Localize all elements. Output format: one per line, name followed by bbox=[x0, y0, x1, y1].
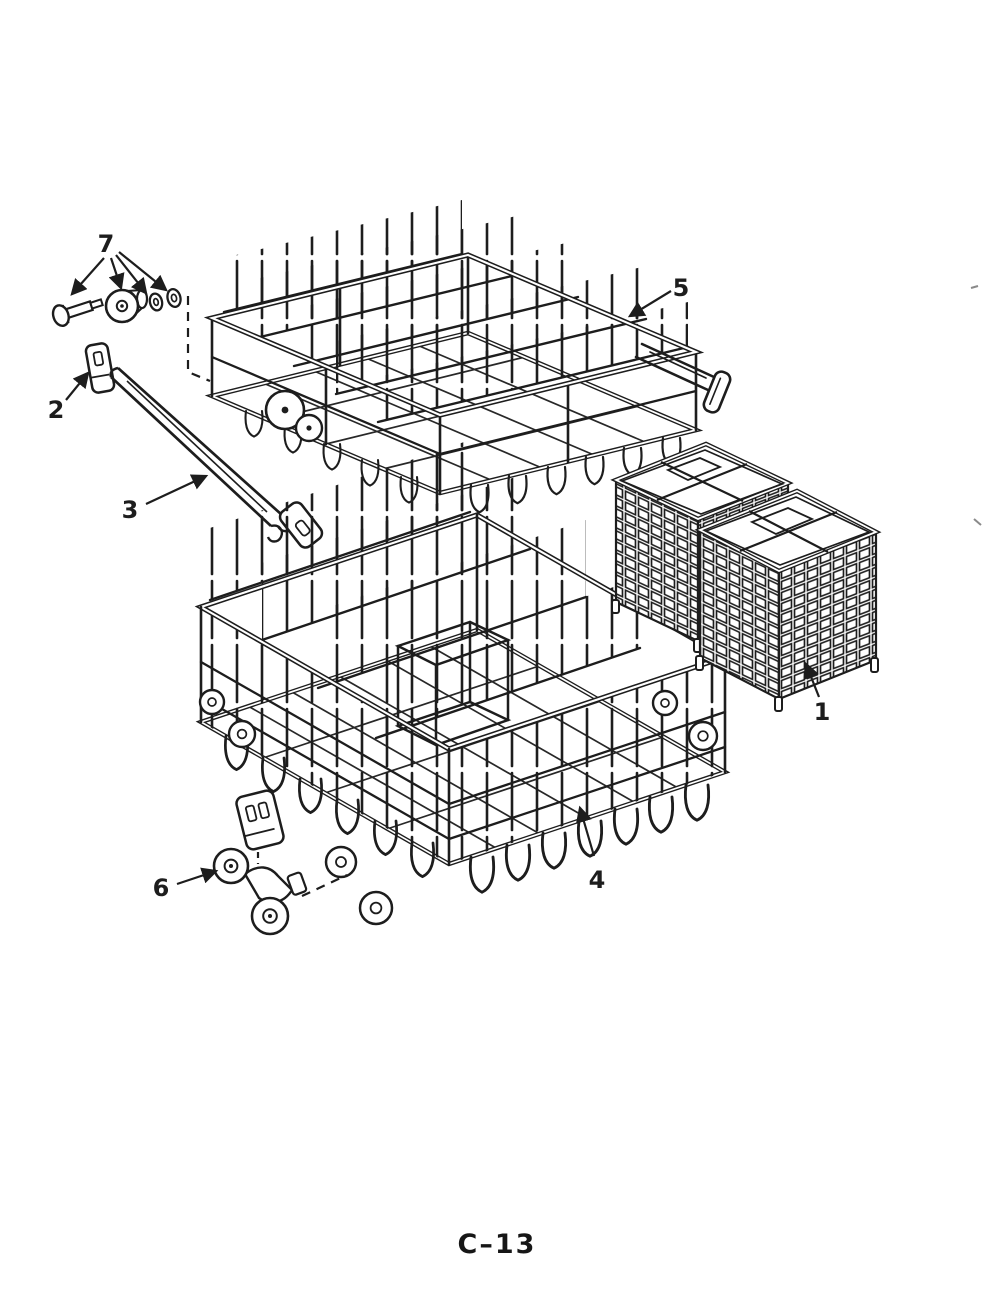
callout-6: 6 bbox=[153, 871, 216, 902]
page-label: C–13 bbox=[458, 1229, 537, 1260]
callout-3-label: 3 bbox=[122, 496, 139, 524]
print-specks bbox=[971, 286, 981, 525]
axle-screw-and-washers bbox=[51, 288, 210, 381]
callout-4-label: 4 bbox=[589, 866, 606, 894]
callout-2-label: 2 bbox=[48, 396, 65, 424]
callout-7-label: 7 bbox=[98, 230, 115, 258]
callout-1-label: 1 bbox=[814, 698, 831, 726]
alignment-dashed-line bbox=[188, 296, 210, 381]
upper-rack-wheel bbox=[266, 391, 322, 441]
callout-2: 2 bbox=[48, 373, 88, 424]
callout-5-label: 5 bbox=[673, 274, 690, 302]
callout-7: 7 bbox=[72, 230, 166, 294]
callout-3: 3 bbox=[122, 476, 206, 524]
upper-rack-tines bbox=[224, 200, 688, 422]
axle-screw bbox=[51, 292, 106, 328]
callout-6-label: 6 bbox=[153, 874, 170, 902]
parts-catalog-page: 7 2 3 5 1 4 6 C–13 bbox=[0, 0, 1000, 1309]
track-mounting-clip bbox=[85, 342, 115, 393]
exploded-parts-diagram: 7 2 3 5 1 4 6 C–13 bbox=[0, 0, 1000, 1309]
track-roller bbox=[106, 290, 147, 322]
roller-mount-clip bbox=[235, 789, 285, 851]
washer bbox=[166, 288, 183, 309]
washer bbox=[148, 292, 164, 311]
